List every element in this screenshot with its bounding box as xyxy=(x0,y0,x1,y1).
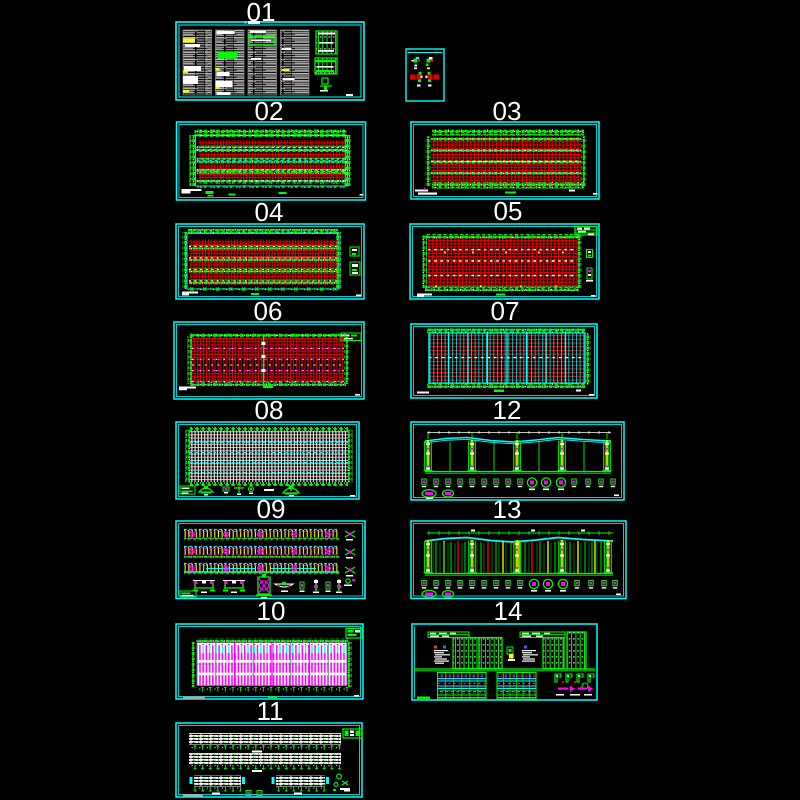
svg-text:14: 14 xyxy=(494,596,523,626)
svg-text:10: 10 xyxy=(257,596,286,626)
svg-text:11: 11 xyxy=(257,696,284,726)
svg-text:12: 12 xyxy=(493,395,522,425)
svg-text:07: 07 xyxy=(491,296,520,326)
svg-text:13: 13 xyxy=(493,494,522,524)
svg-text:04: 04 xyxy=(255,197,284,227)
svg-text:05: 05 xyxy=(494,196,523,226)
